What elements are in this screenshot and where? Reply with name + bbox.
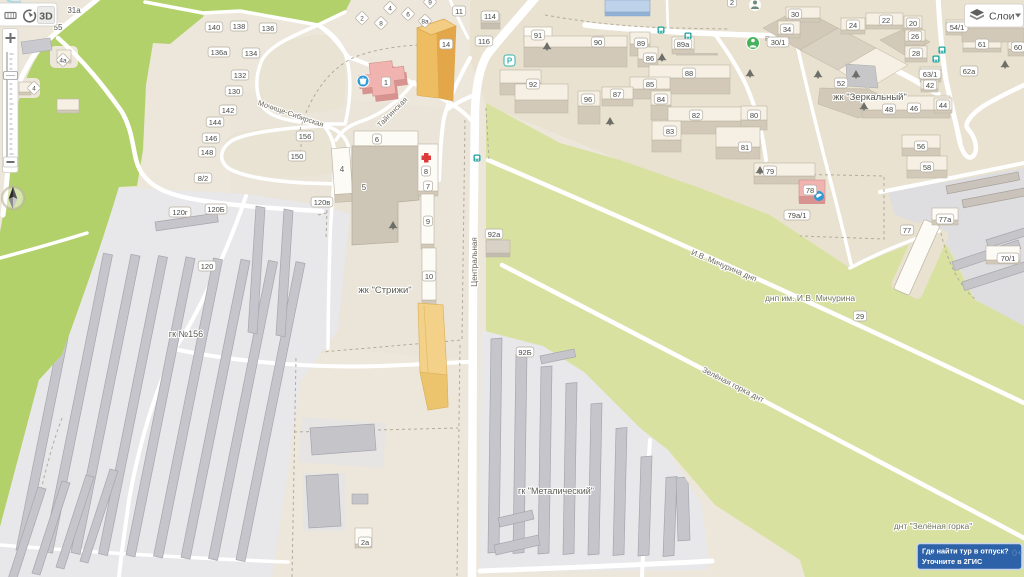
svg-text:79: 79: [766, 167, 774, 176]
svg-text:31а: 31а: [67, 6, 81, 15]
svg-text:85: 85: [646, 80, 654, 89]
svg-text:2а: 2а: [361, 538, 370, 547]
svg-text:80: 80: [750, 111, 758, 120]
svg-text:34: 34: [783, 25, 791, 34]
svg-text:Где найти тур в отпуск?: Где найти тур в отпуск?: [922, 547, 1009, 556]
svg-text:28: 28: [912, 49, 920, 58]
svg-text:26: 26: [911, 32, 919, 41]
svg-text:61: 61: [978, 40, 986, 49]
svg-text:156: 156: [299, 132, 312, 141]
svg-text:54/1: 54/1: [950, 23, 965, 32]
svg-text:44: 44: [939, 101, 947, 110]
svg-text:4: 4: [340, 165, 345, 174]
svg-text:46: 46: [910, 104, 918, 113]
svg-text:56: 56: [917, 142, 925, 151]
svg-text:10: 10: [425, 272, 433, 281]
svg-text:136а: 136а: [211, 48, 229, 57]
svg-text:144: 144: [209, 118, 222, 127]
svg-text:20: 20: [909, 19, 917, 28]
svg-text:4: 4: [388, 6, 392, 13]
svg-text:146: 146: [205, 134, 218, 143]
svg-text:63/1: 63/1: [923, 70, 938, 79]
svg-text:днт "Зелёная горка": днт "Зелёная горка": [894, 521, 973, 531]
svg-text:86: 86: [646, 54, 654, 63]
svg-text:89а: 89а: [677, 40, 690, 49]
svg-text:30/1: 30/1: [771, 38, 786, 47]
svg-text:4а: 4а: [59, 58, 67, 65]
svg-text:150: 150: [291, 152, 304, 161]
svg-text:120Б: 120Б: [207, 205, 225, 214]
svg-text:22: 22: [882, 16, 890, 25]
svg-text:8: 8: [379, 21, 383, 28]
svg-text:134: 134: [245, 49, 258, 58]
svg-text:6: 6: [375, 135, 379, 144]
svg-text:Слои: Слои: [989, 11, 1015, 23]
svg-text:88: 88: [685, 69, 693, 78]
svg-text:60: 60: [1014, 43, 1022, 52]
svg-text:29: 29: [856, 312, 864, 321]
svg-text:4: 4: [32, 86, 36, 93]
svg-text:142: 142: [222, 106, 235, 115]
svg-text:120в: 120в: [314, 198, 331, 207]
svg-text:6: 6: [406, 12, 410, 19]
svg-text:62а: 62а: [963, 67, 976, 76]
svg-text:30: 30: [791, 10, 799, 19]
svg-text:91: 91: [534, 31, 542, 40]
svg-text:83: 83: [666, 127, 674, 136]
svg-text:8/2: 8/2: [198, 174, 208, 183]
svg-text:81: 81: [741, 143, 749, 152]
svg-text:днп им. И.В. Мичурина: днп им. И.В. Мичурина: [765, 293, 855, 303]
svg-text:P: P: [507, 57, 513, 66]
svg-text:52: 52: [837, 79, 845, 88]
svg-text:79а/1: 79а/1: [788, 211, 807, 220]
svg-text:1: 1: [384, 78, 388, 87]
svg-text:11: 11: [455, 7, 463, 16]
svg-text:жк "Стрижи": жк "Стрижи": [358, 285, 411, 296]
svg-text:5: 5: [362, 183, 367, 192]
svg-text:0+: 0+: [1012, 548, 1022, 558]
svg-text:130: 130: [228, 87, 241, 96]
svg-text:148: 148: [201, 148, 214, 157]
svg-text:8: 8: [424, 167, 428, 176]
svg-text:92Б: 92Б: [518, 348, 531, 357]
svg-text:8а: 8а: [421, 19, 429, 26]
svg-text:гк №156: гк №156: [169, 329, 203, 339]
svg-text:138: 138: [233, 22, 246, 31]
svg-text:96: 96: [584, 95, 592, 104]
svg-text:14: 14: [442, 40, 450, 49]
svg-text:136: 136: [262, 24, 275, 33]
svg-text:90: 90: [594, 38, 602, 47]
svg-text:2: 2: [730, 0, 734, 7]
svg-text:116: 116: [478, 37, 490, 46]
svg-text:132: 132: [234, 71, 247, 80]
svg-text:гк "Металический": гк "Металический": [518, 486, 594, 496]
svg-text:92а: 92а: [488, 230, 501, 239]
svg-text:3D: 3D: [39, 11, 53, 23]
svg-text:58: 58: [923, 163, 931, 172]
svg-text:48: 48: [885, 105, 893, 114]
svg-text:92: 92: [529, 80, 537, 89]
svg-text:жк "Зеркальный": жк "Зеркальный": [833, 92, 907, 103]
svg-text:82: 82: [692, 111, 700, 120]
svg-text:84: 84: [657, 95, 665, 104]
svg-text:89: 89: [637, 39, 645, 48]
svg-text:114: 114: [484, 12, 496, 21]
svg-text:140: 140: [208, 23, 221, 32]
svg-text:70/1: 70/1: [1001, 254, 1016, 263]
svg-text:9: 9: [426, 217, 430, 226]
svg-text:87: 87: [613, 90, 621, 99]
svg-text:120г: 120г: [172, 208, 188, 217]
svg-text:24: 24: [849, 21, 857, 30]
svg-text:7: 7: [426, 182, 430, 191]
svg-text:Уточните в 2ГИС: Уточните в 2ГИС: [922, 557, 983, 566]
svg-text:9: 9: [428, 0, 432, 7]
svg-text:77: 77: [903, 226, 911, 235]
svg-text:78: 78: [806, 186, 814, 195]
svg-text:42: 42: [926, 81, 934, 90]
svg-text:2: 2: [360, 16, 364, 23]
svg-text:Центральная: Центральная: [470, 237, 479, 286]
svg-text:77а: 77а: [939, 215, 952, 224]
svg-text:120: 120: [201, 262, 214, 271]
